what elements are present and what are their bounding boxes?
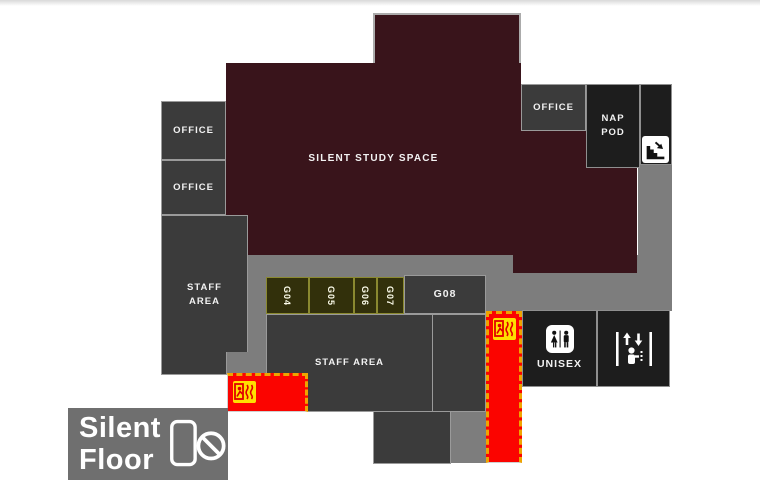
elevator-icon bbox=[614, 330, 654, 368]
room-label-staff-area-mid: STAFF AREA bbox=[315, 356, 384, 370]
room-g08: G08 bbox=[404, 275, 486, 314]
corridor-left-vertical bbox=[248, 256, 266, 373]
room-g05: G05 bbox=[309, 277, 354, 314]
corridor-bottom-piece bbox=[450, 412, 486, 463]
room-label-nap-pod: NAP POD bbox=[595, 112, 631, 140]
room-label-staff-area-left: STAFF AREA bbox=[179, 281, 231, 309]
floor-legend-title: Silent Floor bbox=[79, 412, 161, 476]
corridor-east bbox=[486, 277, 672, 311]
legend-line-1: Silent bbox=[79, 412, 161, 444]
room-nap-pod: NAP POD bbox=[586, 84, 640, 168]
no-phone-icon bbox=[168, 417, 226, 471]
room-stairwell bbox=[640, 84, 672, 165]
room-office-top: OFFICE bbox=[521, 84, 586, 131]
room-label-g07: G07 bbox=[385, 285, 395, 305]
room-label-silent-study: SILENT STUDY SPACE bbox=[308, 152, 438, 167]
room-g07: G07 bbox=[377, 277, 404, 314]
emergency-exit-zone-east bbox=[486, 311, 522, 463]
emergency-exit-zone-west bbox=[227, 373, 308, 412]
room-label-g06: G06 bbox=[360, 285, 370, 305]
room-staff-area-mid-east bbox=[432, 314, 486, 412]
room-g04: G04 bbox=[266, 277, 309, 314]
corridor-notch-overlay bbox=[226, 352, 248, 374]
stairs-icon bbox=[642, 136, 669, 163]
room-silent-study-notch bbox=[373, 13, 521, 63]
room-label-office-top: OFFICE bbox=[533, 101, 574, 115]
room-label-g04: G04 bbox=[282, 285, 292, 305]
room-office-2: OFFICE bbox=[161, 160, 226, 215]
room-unisex-toilet: UNISEX bbox=[522, 310, 597, 387]
room-elevator bbox=[597, 310, 670, 387]
room-staff-area-left: STAFF AREA bbox=[161, 215, 248, 375]
floor-legend: Silent Floor bbox=[68, 408, 228, 480]
legend-line-2: Floor bbox=[79, 444, 161, 476]
unisex-toilet-icon bbox=[546, 325, 574, 353]
emergency-exit-icon bbox=[493, 318, 516, 340]
room-label-unisex: UNISEX bbox=[537, 357, 582, 372]
emergency-exit-icon bbox=[233, 381, 256, 403]
room-label-office-2: OFFICE bbox=[173, 181, 214, 195]
room-label-g05: G05 bbox=[326, 285, 336, 305]
floor-plan-canvas: SILENT STUDY SPACE OFFICE OFFICE STAFF A… bbox=[0, 0, 760, 500]
room-silent-study: SILENT STUDY SPACE bbox=[226, 63, 521, 255]
room-label-office-1: OFFICE bbox=[173, 124, 214, 138]
page-top-shadow bbox=[0, 0, 760, 6]
room-office-1: OFFICE bbox=[161, 101, 226, 160]
room-label-g08: G08 bbox=[434, 287, 457, 302]
room-g06: G06 bbox=[354, 277, 377, 314]
room-lower-annex bbox=[373, 411, 451, 464]
